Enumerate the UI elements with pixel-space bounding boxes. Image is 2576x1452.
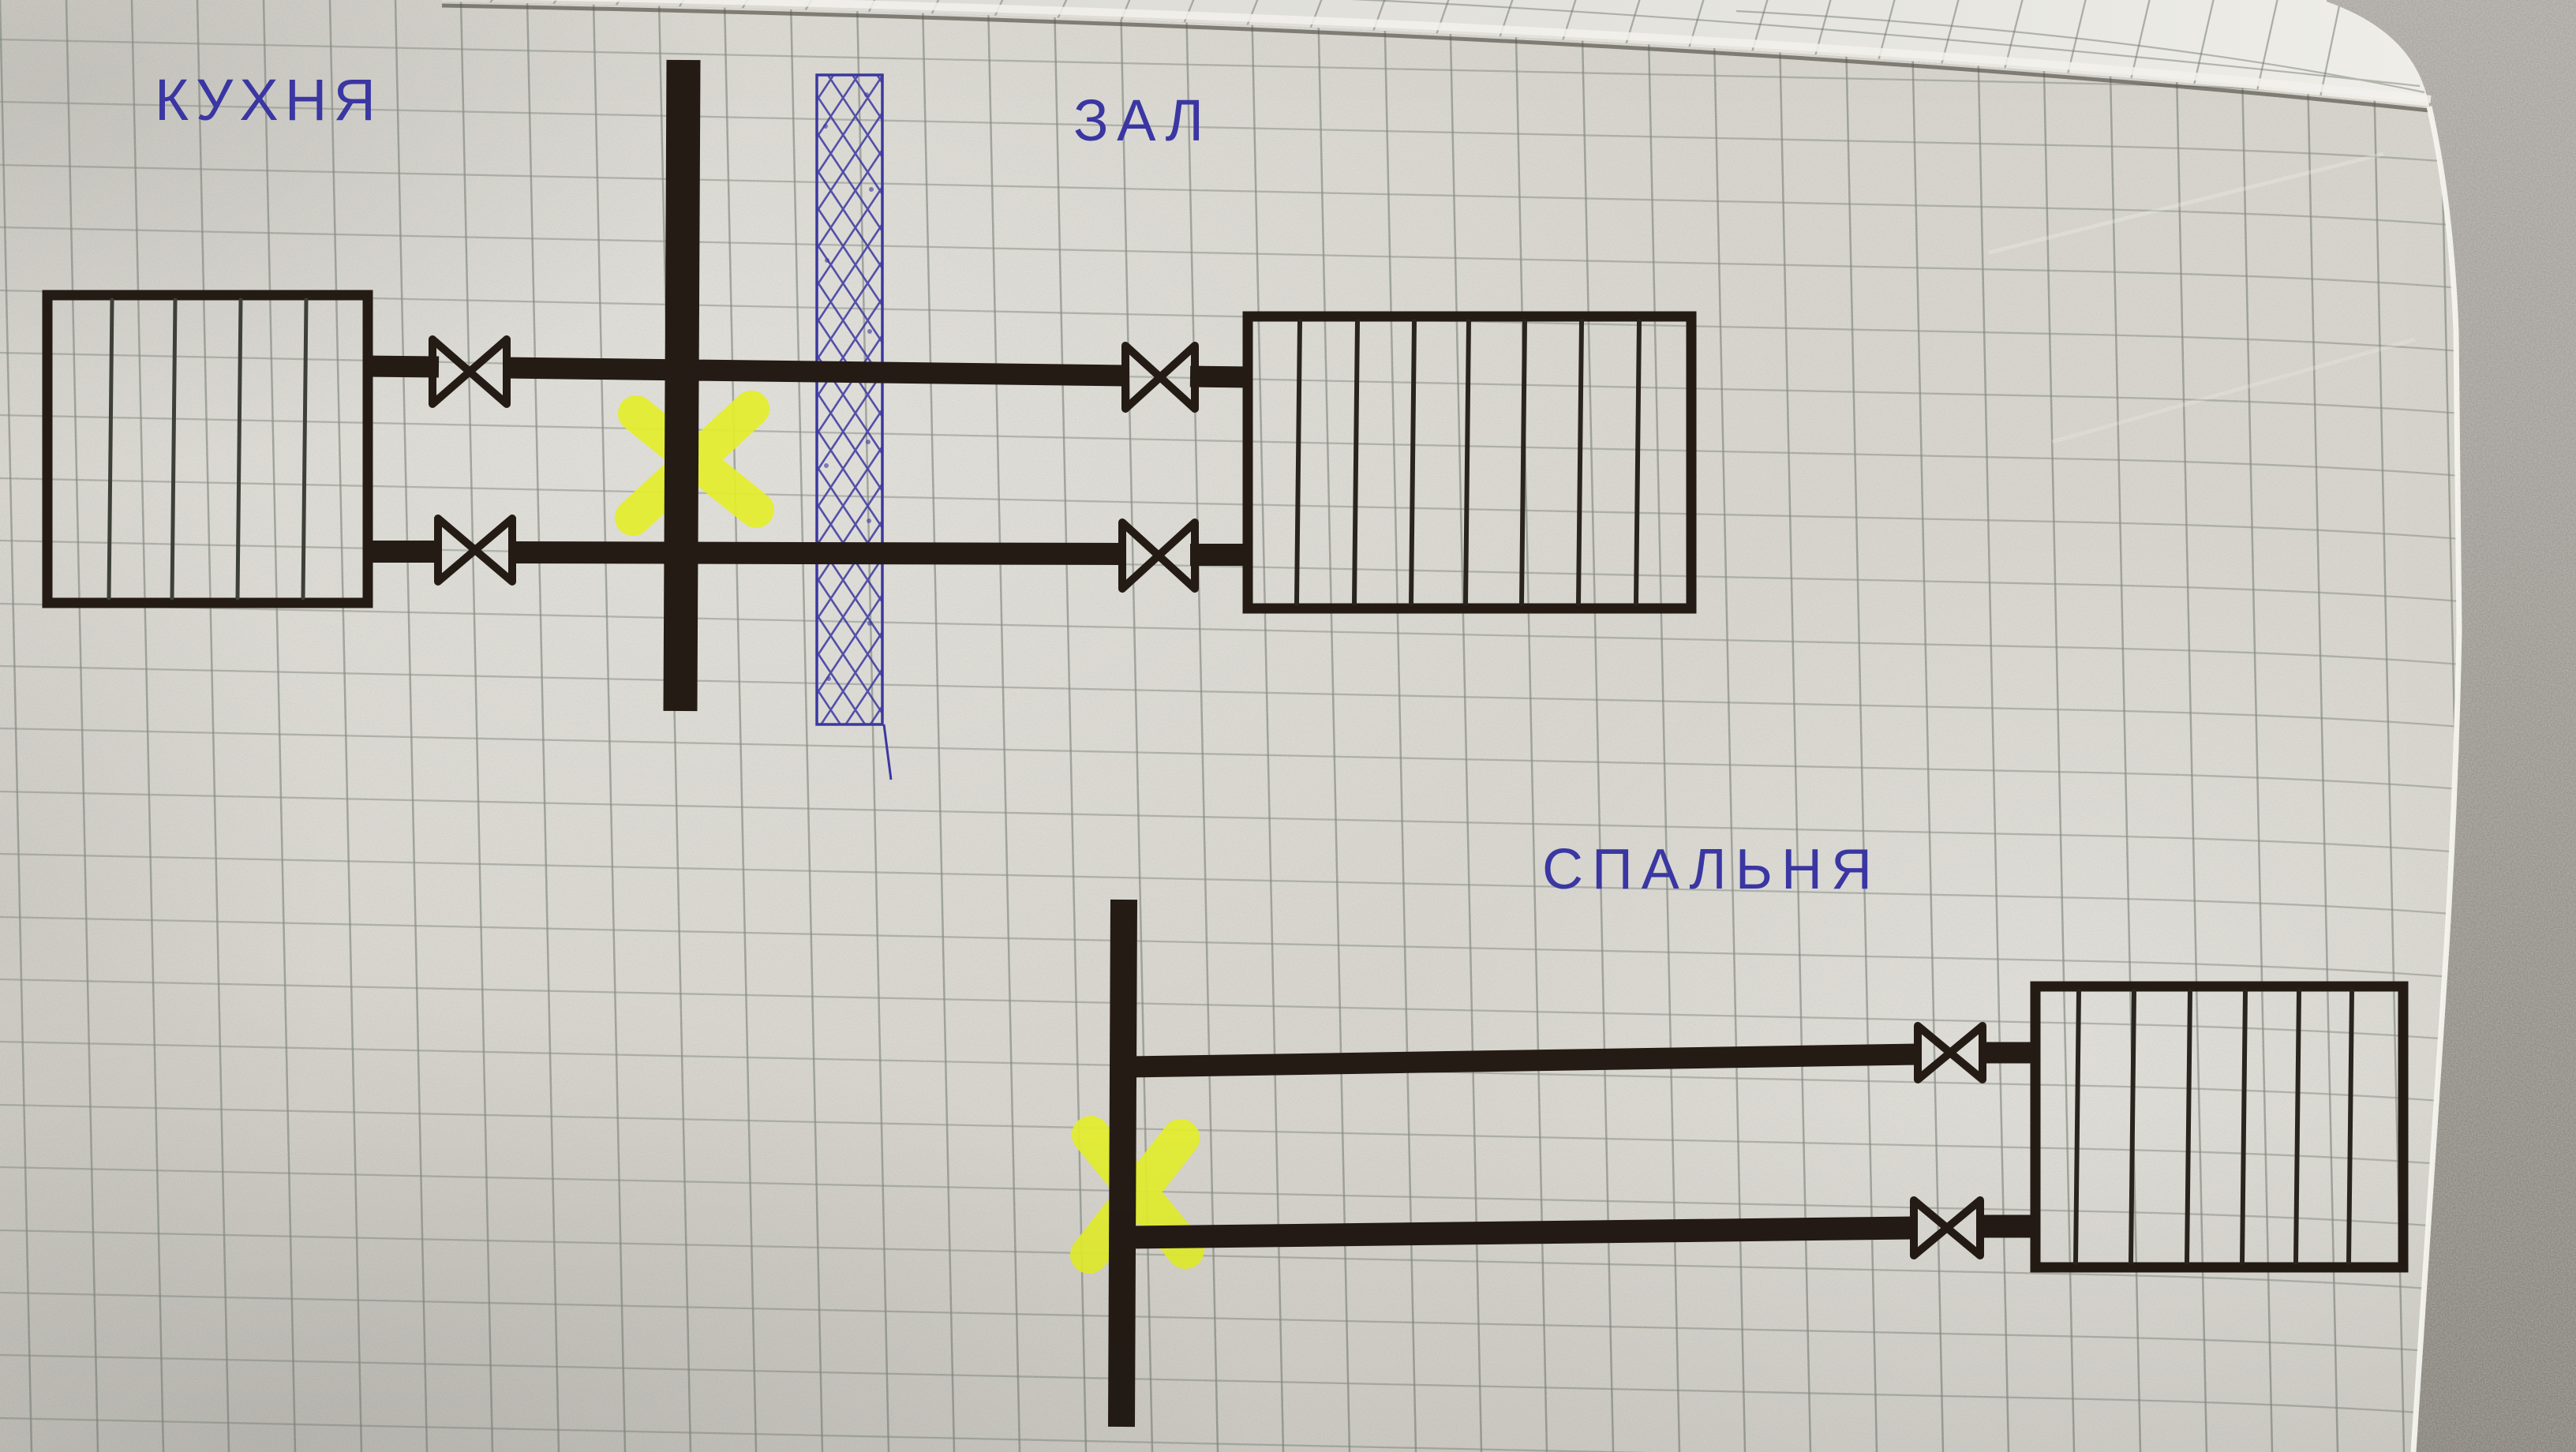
- svg-text:ЗАЛ: ЗАЛ: [1073, 88, 1210, 153]
- svg-text:СПАЛЬНЯ: СПАЛЬНЯ: [1542, 838, 1881, 901]
- svg-text:КУХНЯ: КУХНЯ: [155, 67, 387, 133]
